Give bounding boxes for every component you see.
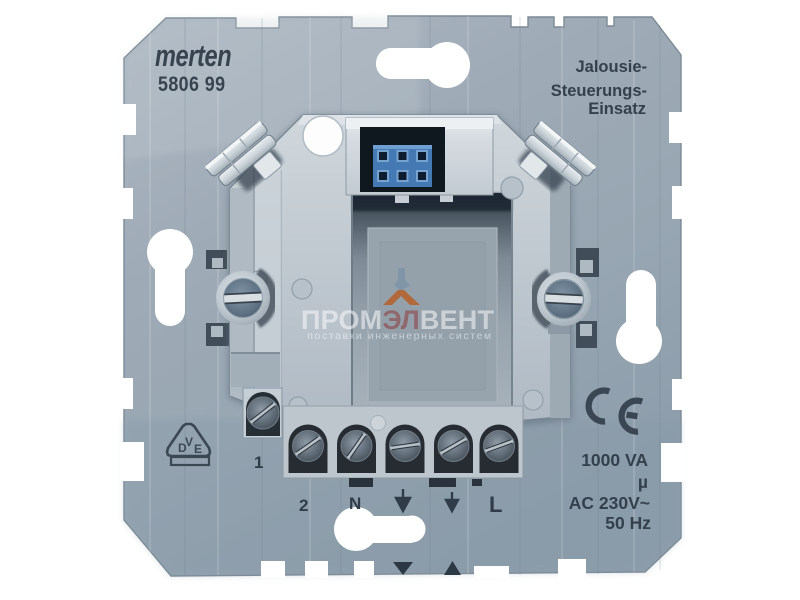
svg-text:1000 VA: 1000 VA [581,450,648,470]
svg-text:merten: merten [155,38,231,73]
svg-text:5806 99: 5806 99 [158,73,225,97]
svg-text:µ: µ [638,472,648,492]
svg-text:V: V [185,435,193,449]
svg-text:Steuerungs-: Steuerungs- [551,82,647,100]
svg-text:AC 230V~: AC 230V~ [569,493,650,513]
svg-text:Einsatz: Einsatz [588,100,646,118]
svg-text:E: E [194,442,202,456]
svg-text:L: L [489,492,502,517]
svg-text:поставки инженерных систем: поставки инженерных систем [307,330,493,342]
svg-text:2: 2 [299,496,308,515]
svg-text:Jalousie-: Jalousie- [575,58,647,76]
svg-text:50 Hz: 50 Hz [605,513,651,533]
svg-text:N: N [349,494,361,513]
svg-text:1: 1 [254,453,263,472]
